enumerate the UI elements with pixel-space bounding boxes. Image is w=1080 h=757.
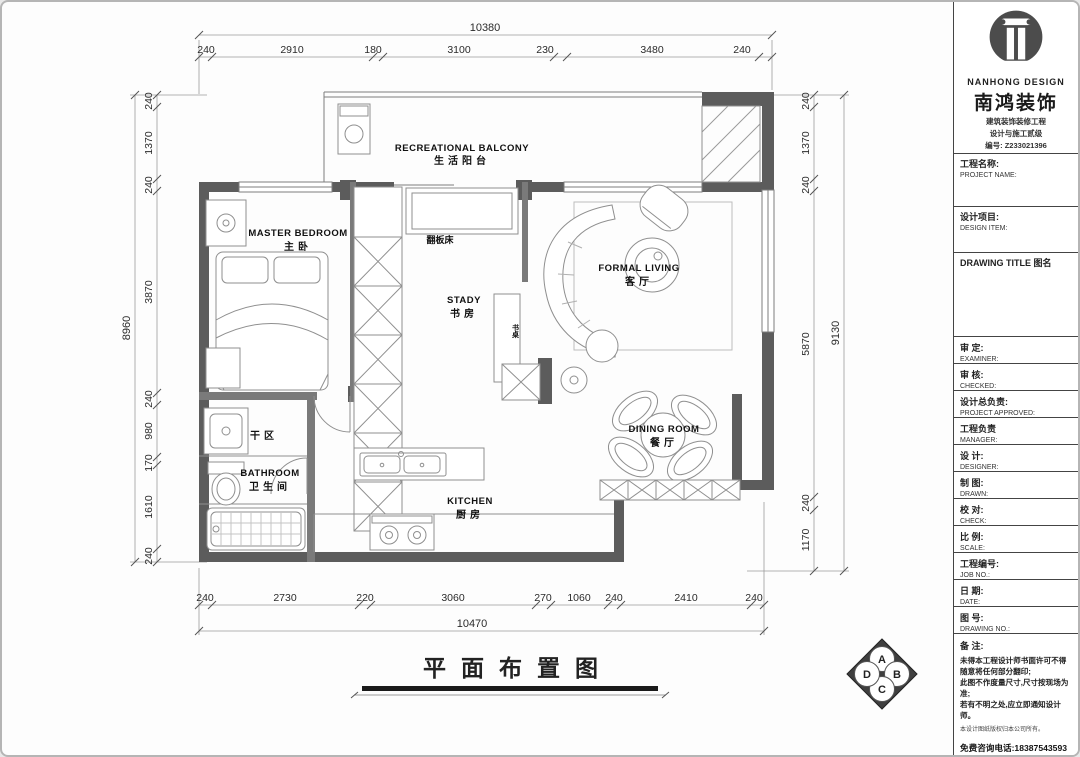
field-examiner: 审 定: EXAMINER: [954, 337, 1078, 364]
kitchen-island [354, 448, 484, 480]
label-study-en: STADY [447, 295, 481, 306]
field-manager: 工程负责 MANAGER: [954, 418, 1078, 445]
compass-c: C [878, 684, 886, 696]
floor-plan-drawing: 10380 240 2910 180 3100 230 3480 240 104… [2, 2, 957, 757]
brand-cert-no: 编号: Z233021396 [954, 141, 1078, 151]
label-kitchen-cn: 厨房 [456, 508, 484, 521]
field-label-cn: 校 对: [960, 503, 1072, 516]
field-label-en: DESIGNER: [960, 464, 1072, 471]
dim-label: 2910 [280, 44, 304, 56]
plan-title: 平面布置图 [423, 655, 613, 681]
dim-label: 240 [143, 92, 155, 110]
corner-hatch-frame [702, 106, 760, 182]
dim-label: 240 [800, 176, 812, 194]
compass-a: A [878, 654, 886, 666]
field-check: 校 对: CHECK: [954, 499, 1078, 526]
dining-set [601, 383, 723, 489]
field-label-cn: 比 例: [960, 530, 1072, 543]
dim-left-total: 8960 [121, 316, 133, 340]
corner-hatch [702, 106, 760, 182]
field-label-cn: 工程负责 [960, 422, 1072, 435]
nightstand [206, 200, 246, 246]
field-label-en: CHECK: [960, 518, 1072, 525]
plan-title-block: 平面布置图 [351, 655, 669, 698]
blueprint-page: 10380 240 2910 180 3100 230 3480 240 104… [0, 0, 1080, 757]
dim-label: 180 [364, 44, 382, 56]
dim-label: 1370 [800, 131, 812, 155]
field-drawing-no: 图 号: DRAWING NO.: [954, 607, 1078, 634]
brand-cert-line2: 设计与施工贰级 [954, 129, 1078, 139]
dims-left: 8960 240 1370 240 3870 240 980 170 1610 … [121, 92, 155, 565]
brand-name-cn: 南鸿装饰 [954, 88, 1078, 115]
notes-section: 备 注: 未得本工程设计师书面许可不得随意将任何部分翻印; 此图不作度量尺寸,尺… [954, 634, 1078, 757]
label-study-cn: 书房 [450, 307, 478, 320]
field-label-en: PROJECT NAME: [960, 172, 1072, 179]
notes-heading: 备 注: [960, 639, 1072, 652]
bathtub [207, 508, 305, 550]
company-logo: NANHONG DESIGN 南鸿装饰 建筑装饰装修工程 设计与施工贰级 编号:… [954, 2, 1078, 154]
field-label-en: JOB NO.: [960, 572, 1072, 579]
dim-label: 2730 [273, 592, 297, 604]
stove [370, 514, 434, 550]
field-label-en: MANAGER: [960, 437, 1072, 444]
floor-plan-area: 10380 240 2910 180 3100 230 3480 240 104… [2, 2, 957, 757]
dim-label: 1370 [143, 131, 155, 155]
label-dining-cn: 餐厅 [649, 436, 678, 449]
field-label-cn: 设 计: [960, 449, 1072, 462]
note-line: 未得本工程设计师书面许可不得随意将任何部分翻印; [960, 655, 1072, 677]
field-label-cn: 制 图: [960, 476, 1072, 489]
field-label-en: DRAWING NO.: [960, 626, 1072, 633]
corner-lamp [561, 367, 587, 393]
dim-label: 240 [143, 176, 155, 194]
dim-label: 240 [800, 494, 812, 512]
field-scale: 比 例: SCALE: [954, 526, 1078, 553]
washer [338, 104, 370, 154]
label-bathroom-en: BATHROOM [240, 468, 299, 479]
label-kitchen-en: KITCHEN [447, 496, 493, 507]
label-dry-area: 干区 [250, 430, 278, 442]
label-balcony-cn: 生活阳台 [434, 154, 490, 167]
field-label-cn: 设计总负责: [960, 395, 1072, 408]
dry-area-sink [204, 408, 248, 454]
dim-label: 240 [196, 592, 214, 604]
dim-label: 240 [733, 44, 751, 56]
dim-label: 3870 [143, 280, 155, 304]
balcony-glazing [324, 92, 702, 182]
label-balcony-en: RECREATIONAL BALCONY [395, 143, 529, 154]
field-label-cn: 工程编号: [960, 557, 1072, 570]
field-drawn: 制 图: DRAWN: [954, 472, 1078, 499]
dim-label: 240 [143, 547, 155, 565]
dim-label: 240 [197, 44, 215, 56]
murphy-bed [406, 188, 518, 234]
dims-top: 10380 240 2910 180 3100 230 3480 240 [197, 22, 751, 56]
field-date: 日 期: DATE: [954, 580, 1078, 607]
field-label-en: DESIGN ITEM: [960, 225, 1072, 232]
field-label-en: SCALE: [960, 545, 1072, 552]
dims-bottom: 10470 240 2730 220 3060 270 1060 240 241… [196, 592, 763, 630]
label-dining-en: DINING ROOM [629, 424, 700, 435]
field-label-cn: 审 定: [960, 341, 1072, 354]
dim-label: 2410 [674, 592, 698, 604]
label-bathroom-cn: 卫生间 [249, 480, 291, 493]
compass-b: B [893, 669, 901, 681]
dim-label: 270 [534, 592, 552, 604]
field-label-en: DATE: [960, 599, 1072, 606]
field-label-cn: 审 核: [960, 368, 1072, 381]
dim-label: 3060 [441, 592, 465, 604]
dim-label: 170 [143, 454, 155, 472]
toilet [208, 462, 244, 505]
dim-label: 980 [143, 422, 155, 440]
note-line-small: 本设计图纸版权归本公司所有。 [960, 724, 1072, 733]
compass-icon: A B C D [847, 639, 917, 709]
field-label-cn: 设计项目: [960, 210, 1072, 223]
dim-label: 1060 [567, 592, 591, 604]
dim-label: 1170 [800, 529, 812, 552]
contact-phone: 免费咨询电话:18387543593 [960, 742, 1072, 754]
label-living-cn: 客厅 [624, 275, 653, 288]
dim-label: 1610 [143, 495, 155, 519]
dim-label: 3100 [447, 44, 471, 56]
brand-name-en: NANHONG DESIGN [954, 77, 1078, 87]
dim-label: 240 [143, 390, 155, 408]
label-master-en: MASTER BEDROOM [248, 228, 347, 239]
field-label-cn: 图 号: [960, 611, 1072, 624]
label-living-en: FORMAL LIVING [598, 263, 679, 274]
dims-right: 9130 240 1370 240 5870 240 1170 [800, 92, 842, 551]
dim-label: 3480 [640, 44, 664, 56]
dim-bottom-total: 10470 [457, 618, 488, 630]
dim-label: 240 [800, 92, 812, 110]
dim-top-total: 10380 [470, 22, 501, 34]
dim-label: 240 [745, 592, 763, 604]
field-label-cn: 工程名称: [960, 157, 1072, 170]
field-job-no: 工程编号: JOB NO.: [954, 553, 1078, 580]
field-project-name: 工程名称: PROJECT NAME: [954, 154, 1078, 208]
field-drawing-title: DRAWING TITLE 图名 [954, 253, 1078, 337]
field-designer: 设 计: DESIGNER: [954, 445, 1078, 472]
field-project-approved: 设计总负责: PROJECT APPROVED: [954, 391, 1078, 418]
title-block: NANHONG DESIGN 南鸿装饰 建筑装饰装修工程 设计与施工贰级 编号:… [953, 2, 1078, 757]
note-line: 此图不作度量尺寸,尺寸按现场为准; [960, 677, 1072, 699]
nightstand [206, 348, 240, 388]
label-murphy-bed: 翻板床 [426, 234, 454, 245]
field-label-en: CHECKED: [960, 383, 1072, 390]
dim-label: 5870 [800, 332, 812, 356]
field-label-cn: DRAWING TITLE 图名 [960, 256, 1072, 269]
field-checked: 审 核: CHECKED: [954, 364, 1078, 391]
dim-label: 220 [356, 592, 374, 604]
door-bedroom [314, 396, 350, 432]
dim-right-total: 9130 [830, 321, 842, 345]
dim-label: 240 [605, 592, 623, 604]
field-label-en: EXAMINER: [960, 356, 1072, 363]
compass-d: D [863, 669, 871, 681]
note-line: 若有不明之处,应立即通知设计师。 [960, 699, 1072, 721]
column-logo-icon [983, 8, 1049, 70]
field-label-en: PROJECT APPROVED: [960, 410, 1072, 417]
field-label-en: DRAWN: [960, 491, 1072, 498]
field-label-cn: 日 期: [960, 584, 1072, 597]
stool [586, 330, 618, 362]
field-design-item: 设计项目: DESIGN ITEM: [954, 207, 1078, 253]
study-closet [502, 364, 540, 400]
label-master-cn: 主卧 [284, 240, 312, 253]
cabinet-row [600, 480, 740, 500]
brand-cert-line1: 建筑装饰装修工程 [954, 117, 1078, 127]
dim-label: 230 [536, 44, 554, 56]
